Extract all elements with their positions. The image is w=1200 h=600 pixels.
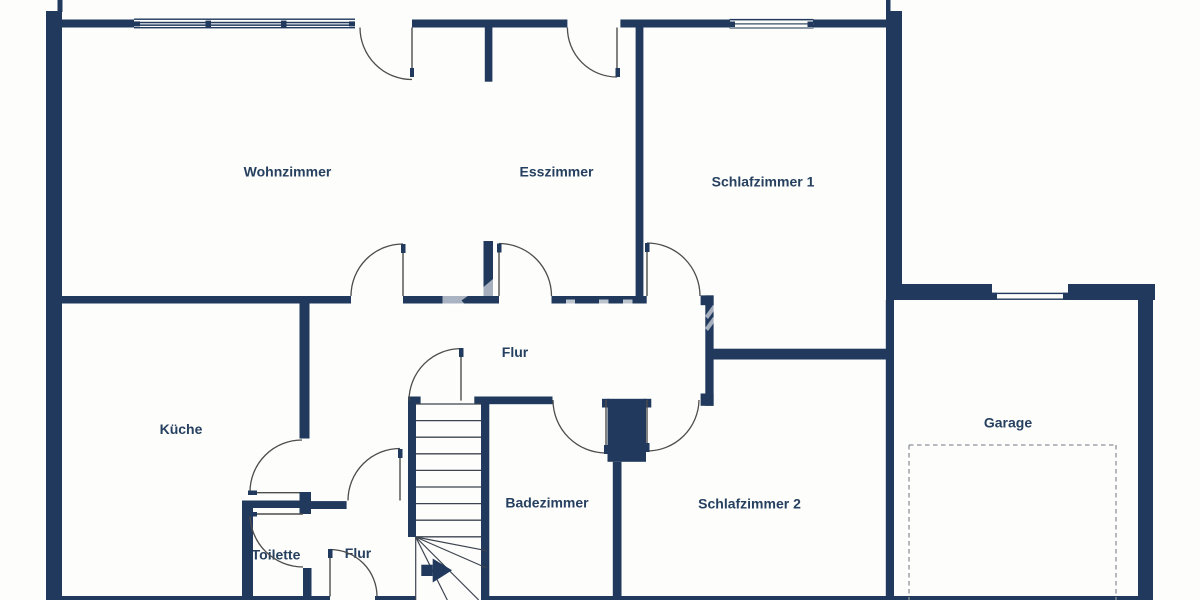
svg-text:Garage: Garage xyxy=(984,415,1032,431)
svg-text:Küche: Küche xyxy=(160,421,203,437)
svg-text:Schlafzimmer 2: Schlafzimmer 2 xyxy=(698,496,801,512)
svg-text:Badezimmer: Badezimmer xyxy=(505,495,589,511)
svg-text:Flur: Flur xyxy=(502,344,529,360)
svg-text:Wohnzimmer: Wohnzimmer xyxy=(244,164,332,180)
svg-text:Esszimmer: Esszimmer xyxy=(520,164,594,180)
svg-text:Schlafzimmer 1: Schlafzimmer 1 xyxy=(712,174,815,190)
